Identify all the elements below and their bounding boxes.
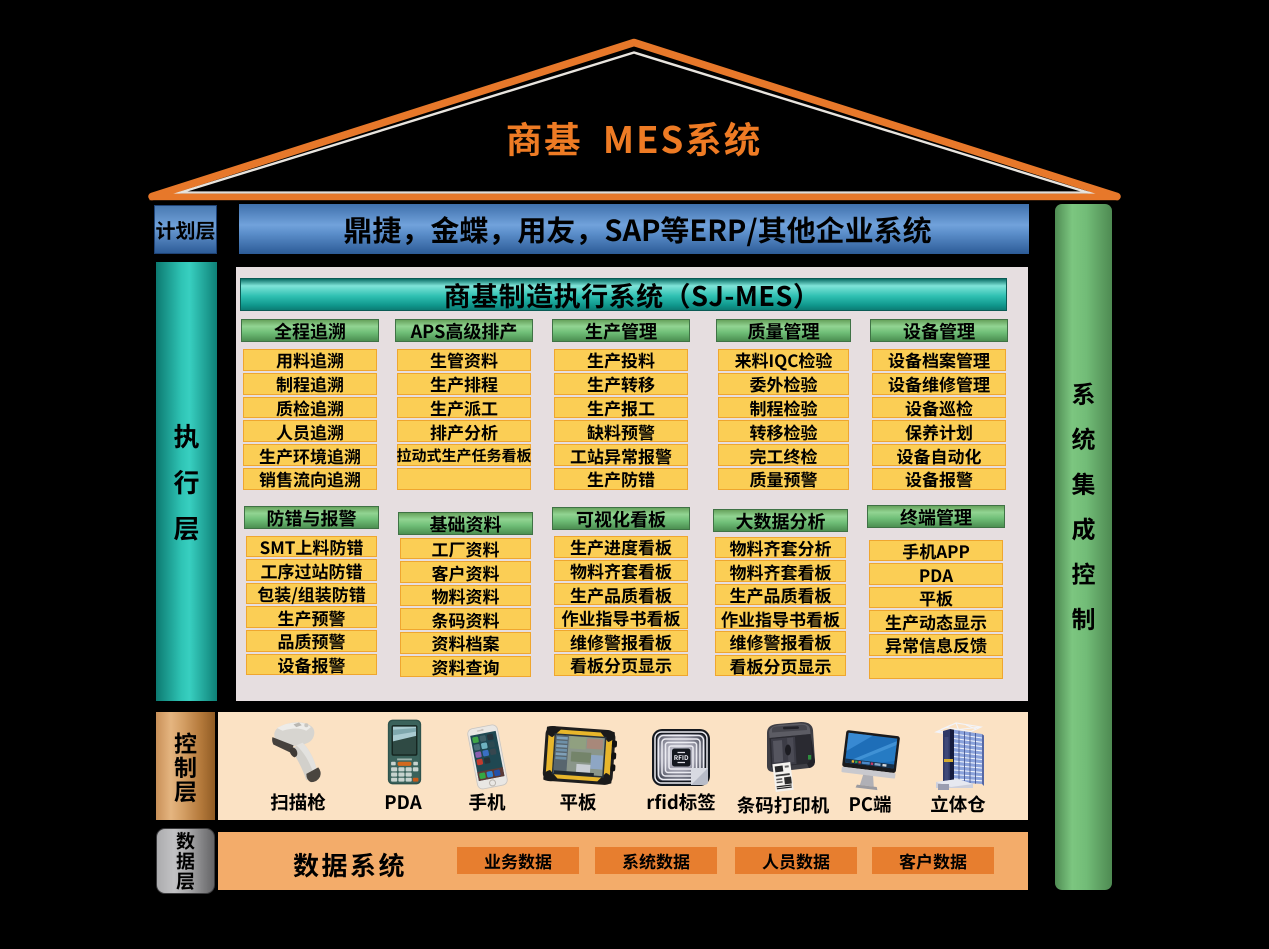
svg-text:RFID: RFID bbox=[674, 753, 689, 762]
